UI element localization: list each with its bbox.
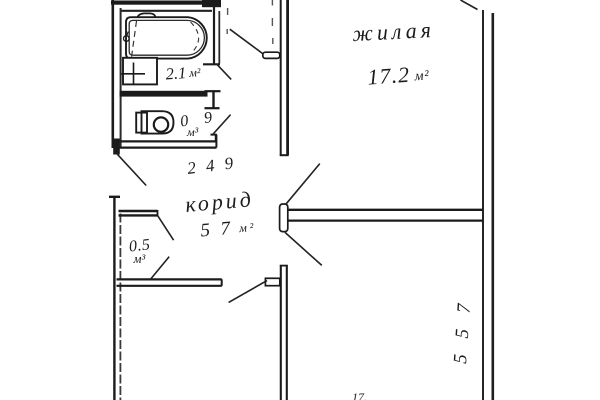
- svg-text:м³: м³: [186, 125, 199, 139]
- svg-text:корид: корид: [184, 186, 255, 217]
- svg-text:жилая: жилая: [352, 17, 436, 46]
- svg-text:17.: 17.: [352, 390, 367, 400]
- svg-text:0 9: 0 9: [179, 108, 219, 130]
- svg-text:2.1 м²: 2.1 м²: [165, 62, 202, 83]
- svg-text:м³: м³: [133, 252, 146, 266]
- svg-text:2 4 9: 2 4 9: [186, 153, 237, 178]
- svg-text:5 7 м²: 5 7 м²: [200, 216, 258, 242]
- svg-text:17.2 м²: 17.2 м²: [367, 60, 431, 89]
- svg-text:5 5 7: 5 5 7: [450, 298, 476, 365]
